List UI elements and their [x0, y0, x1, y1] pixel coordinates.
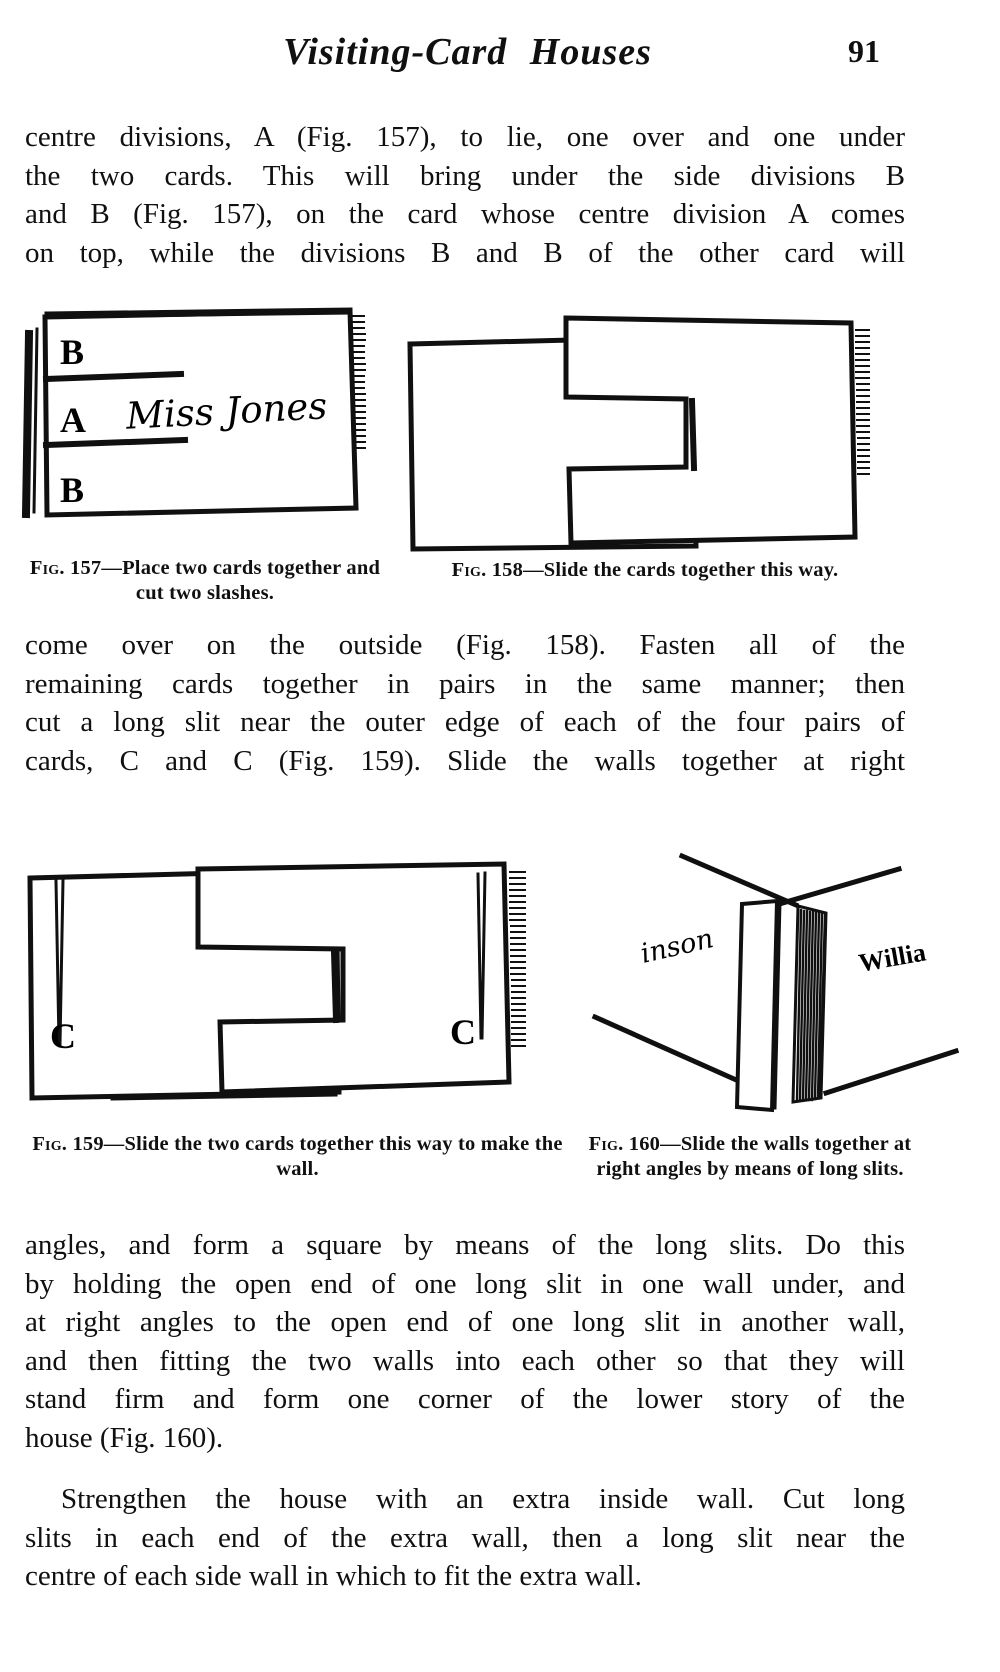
fig158-caption-text: —Slide the cards together this way.	[523, 559, 838, 581]
wall-script-left: inson	[638, 923, 717, 970]
text-line: at right angles to the open end of one l…	[25, 1303, 905, 1342]
fig159-wall-drawing: C C	[26, 852, 563, 1104]
division-label-b-top: B	[60, 332, 84, 372]
text-line: on top, while the divisions B and B of t…	[25, 234, 905, 273]
text-line: and then fitting the two walls into each…	[25, 1342, 905, 1381]
paragraph-3: angles, and form a square by means of th…	[25, 1226, 905, 1458]
paragraph-1: centre divisions, A (Fig. 157), to lie, …	[25, 118, 905, 272]
fig157-card-drawing: B A B Miss Jones	[18, 302, 366, 544]
fig158-caption: Fig. 158—Slide the cards together this w…	[395, 558, 895, 583]
fig159-caption-text: —Slide the two cards together this way t…	[104, 1133, 563, 1180]
text-line: slits in each end of the extra wall, the…	[25, 1519, 905, 1558]
fig159-caption: Fig. 159—Slide the two cards together th…	[25, 1132, 570, 1182]
fig159-caption-label: Fig. 159	[32, 1133, 103, 1155]
division-label-b-bottom: B	[60, 470, 84, 510]
text-line: come over on the outside (Fig. 158). Fas…	[25, 626, 905, 665]
fig158-caption-label: Fig. 158	[452, 559, 523, 581]
paragraph-2: come over on the outside (Fig. 158). Fas…	[25, 626, 905, 780]
text-line: stand firm and form one corner of the lo…	[25, 1380, 905, 1419]
slit-label-c-left: C	[50, 1016, 76, 1056]
text-line: cut a long slit near the outer edge of e…	[25, 703, 905, 742]
page-title: Visiting-Card Houses	[0, 30, 935, 74]
page-number: 91	[848, 33, 880, 70]
book-page: Visiting-Card Houses 91 centre divisions…	[0, 0, 1000, 1672]
division-label-a: A	[60, 400, 86, 440]
text-line: centre divisions, A (Fig. 157), to lie, …	[25, 118, 905, 157]
fig158-cards-drawing	[390, 306, 897, 553]
text-line: and B (Fig. 157), on the card whose cent…	[25, 195, 905, 234]
fig157-caption-text: —Place two cards together and cut two sl…	[101, 557, 380, 604]
fig160-corner-drawing: inson Willia	[583, 850, 965, 1114]
paragraph-4: Strengthen the house with an extra insid…	[25, 1480, 905, 1596]
slit-label-c-right: C	[450, 1012, 476, 1052]
text-line: Strengthen the house with an extra insid…	[25, 1480, 905, 1519]
text-line: by holding the open end of one long slit…	[25, 1265, 905, 1304]
fig160-caption: Fig. 160—Slide the walls together at rig…	[565, 1132, 935, 1182]
fig160-caption-label: Fig. 160	[589, 1133, 660, 1155]
text-line: the two cards. This will bring under the…	[25, 157, 905, 196]
text-line: angles, and form a square by means of th…	[25, 1226, 905, 1265]
text-line: cards, C and C (Fig. 159). Slide the wal…	[25, 742, 905, 781]
text-line: remaining cards together in pairs in the…	[25, 665, 905, 704]
text-line: centre of each side wall in which to fit…	[25, 1557, 905, 1596]
text-line: house (Fig. 160).	[25, 1419, 905, 1458]
fig157-caption-label: Fig. 157	[30, 557, 101, 579]
fig157-caption: Fig. 157—Place two cards together and cu…	[25, 556, 385, 606]
wall-script-right: Willia	[857, 937, 928, 977]
